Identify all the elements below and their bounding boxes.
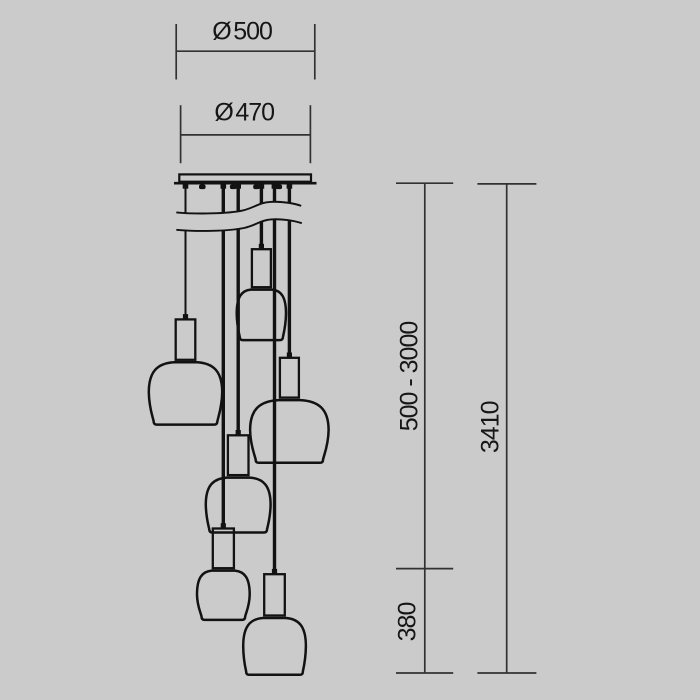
svg-text:3410: 3410 <box>476 401 504 453</box>
svg-text:500 - 3000: 500 - 3000 <box>395 322 423 432</box>
svg-text:Ø500: Ø500 <box>212 18 272 46</box>
svg-text:380: 380 <box>394 603 422 642</box>
svg-text:Ø470: Ø470 <box>214 99 274 127</box>
